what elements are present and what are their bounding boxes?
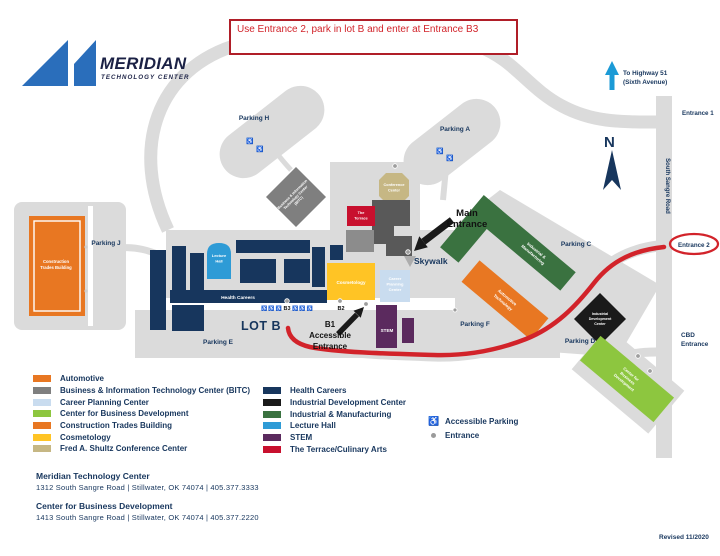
construction-label-2: Trades Building <box>40 265 72 270</box>
legend-swatch <box>33 445 51 452</box>
legend-item: STEM <box>263 432 406 444</box>
idc-label-2: Development <box>589 317 612 321</box>
legend-symbols: ♿ Accessible Parking Entrance <box>428 414 518 443</box>
parking-h-label: Parking H <box>239 115 270 122</box>
legend-swatch <box>263 411 281 418</box>
legend-column-1: Automotive Business & Information Techno… <box>33 373 250 455</box>
idc-label-3: Center <box>594 322 606 326</box>
entrance-1-label: Entrance 1 <box>682 110 714 117</box>
entrance-dot <box>84 289 87 292</box>
legend-label: Automotive <box>60 374 104 383</box>
annotation-box: Use Entrance 2, park in lot B and enter … <box>229 19 518 55</box>
campus-map-page: { "annotation": "Use Entrance 2, park in… <box>0 0 720 556</box>
legend-item: Industrial Development Center <box>263 397 406 409</box>
legend-label: Construction Trades Building <box>60 421 172 430</box>
location-name: Center for Business Development <box>36 501 259 511</box>
legend-label: Entrance <box>445 431 479 440</box>
revised-date: Revised 11/2020 <box>659 534 709 541</box>
building-main-annex <box>346 230 374 252</box>
legend-item: Entrance <box>428 429 518 444</box>
wheelchair-icon: ♿ <box>436 147 444 155</box>
skywalk-label: Skywalk <box>414 256 448 266</box>
legend-label: Business & Information Technology Center… <box>60 386 250 395</box>
parking-c-label: Parking C <box>561 241 592 248</box>
main-entrance-label-1: Main <box>456 208 478 219</box>
legend-item: Fred A. Shultz Conference Center <box>33 443 250 455</box>
entrance-dot-main <box>406 250 411 255</box>
cbd-entrance-label-2: Entrance <box>681 341 709 348</box>
legend-item: Career Planning Center <box>33 396 250 408</box>
entrance-dot-icon <box>428 433 438 438</box>
parking-d-label: Parking D <box>565 338 596 345</box>
legend-swatch <box>263 446 281 453</box>
b3-label: B3 <box>283 306 290 312</box>
conference-label-1: Conference <box>384 183 405 187</box>
location-detail: 1312 South Sangre Road | Stillwater, OK … <box>36 483 259 492</box>
wheelchair-icon: ♿ <box>246 137 254 145</box>
b1-label-2: Accessible <box>309 331 351 340</box>
logo-subtitle: TECHNOLOGY CENTER <box>101 74 190 81</box>
legend-swatch <box>263 399 281 406</box>
legend-item: ♿ Accessible Parking <box>428 414 518 429</box>
building-stem-annex <box>402 318 414 343</box>
legend-label: Career Planning Center <box>60 398 149 407</box>
highway-label-1: To Highway 51 <box>623 70 668 77</box>
entrance-2-label: Entrance 2 <box>678 242 710 249</box>
legend-item: Center for Business Development <box>33 408 250 420</box>
terrace-label-2: Terrace <box>354 217 367 221</box>
entrance-dot <box>84 245 87 248</box>
entrance-dot-b1 <box>364 302 369 307</box>
highway-sign: To Highway 51 (Sixth Avenue) <box>605 61 668 90</box>
entrance-dot-b3 <box>285 299 290 304</box>
meridian-logo: MERIDIAN TECHNOLOGY CENTER <box>20 14 210 90</box>
legend-swatch <box>263 422 281 429</box>
cbd-entrance-label-1: CBD <box>681 332 695 339</box>
parking-j-label: Parking J <box>91 240 121 247</box>
legend-item: The Terrace/Culinary Arts <box>263 443 406 455</box>
legend-swatch <box>33 399 51 406</box>
legend-item: Automotive <box>33 373 250 385</box>
legend-item: Construction Trades Building <box>33 420 250 432</box>
legend-swatch <box>33 434 51 441</box>
logo-peak-left <box>22 40 68 86</box>
parking-h-lot <box>210 76 334 188</box>
parking-e-label: Parking E <box>203 339 234 346</box>
north-compass: N <box>603 134 621 190</box>
legend-swatch <box>33 422 51 429</box>
lecture-hall-label-1: Lecture <box>212 253 227 258</box>
b2-label: B2 <box>337 306 344 312</box>
legend-item: Lecture Hall <box>263 420 406 432</box>
legend-swatch <box>33 410 51 417</box>
location-detail: 1413 South Sangre Road | Stillwater, OK … <box>36 513 259 522</box>
legend-label: Fred A. Shultz Conference Center <box>60 444 187 453</box>
legend-swatch <box>33 375 51 382</box>
meridian-logo-icon <box>20 20 98 90</box>
lecture-hall-label-2: Hall <box>215 259 222 264</box>
b1-label-3: Entrance <box>313 342 348 351</box>
legend-item: Business & Information Technology Center… <box>33 385 250 397</box>
south-sangre-road-label: South Sangre Road <box>664 158 670 214</box>
legend-label: STEM <box>290 433 312 442</box>
legend-label: Health Careers <box>290 386 346 395</box>
logo-title: MERIDIAN <box>100 54 186 74</box>
legend-item: Health Careers <box>263 385 406 397</box>
legend-label: Accessible Parking <box>445 417 518 426</box>
entrance-dot-cbd2 <box>648 369 653 374</box>
legend-item: Industrial & Manufacturing <box>263 408 406 420</box>
main-entrance-label-2: Entrance <box>447 219 488 230</box>
wheelchair-icon-row: ♿♿♿ <box>261 305 283 312</box>
legend-label: The Terrace/Culinary Arts <box>290 445 387 454</box>
cosmetology-label: Cosmetology <box>336 280 366 285</box>
idc-label-1: Industrial <box>592 312 608 316</box>
building-stem <box>376 305 397 348</box>
stem-label: STEM <box>381 328 394 333</box>
terrace-label-1: The <box>358 211 365 215</box>
legend-label: Cosmetology <box>60 433 111 442</box>
legend-item: Cosmetology <box>33 431 250 443</box>
footer-addresses: Meridian Technology Center 1312 South Sa… <box>36 471 259 531</box>
wheelchair-icon: ♿ <box>428 416 438 427</box>
career-label-2: Planning <box>387 282 404 287</box>
legend-label: Industrial Development Center <box>290 398 406 407</box>
entrance-dot-b2 <box>338 299 343 304</box>
b1-label-1: B1 <box>325 320 336 329</box>
highway-label-2: (Sixth Avenue) <box>623 79 667 86</box>
legend-column-2: Health Careers Industrial Development Ce… <box>263 385 406 455</box>
parking-f-label: Parking F <box>460 321 490 328</box>
wheelchair-icon: ♿ <box>446 154 454 162</box>
logo-peak-right <box>74 40 96 86</box>
career-label-1: Career <box>389 276 402 281</box>
career-label-3: Center <box>389 287 402 292</box>
health-careers-label: Health Careers <box>221 295 255 301</box>
legend-label: Industrial & Manufacturing <box>290 410 391 419</box>
north-label: N <box>604 134 615 151</box>
parking-a-label: Parking A <box>440 126 470 133</box>
lot-b-label: LOT B <box>241 319 281 333</box>
legend-swatch <box>263 387 281 394</box>
entrance-dot-conference <box>393 164 398 169</box>
legend-swatch <box>33 387 51 394</box>
highway-arrow-icon <box>605 61 619 75</box>
lot-divider <box>88 206 93 326</box>
conference-label-2: Center <box>388 189 401 193</box>
location-name: Meridian Technology Center <box>36 471 259 481</box>
legend-label: Lecture Hall <box>290 421 336 430</box>
construction-label-1: Construction <box>43 259 69 264</box>
wheelchair-icon: ♿ <box>256 145 264 153</box>
entrance-dot-parking-f <box>453 308 457 312</box>
legend-label: Center for Business Development <box>60 409 188 418</box>
annotation-text: Use Entrance 2, park in lot B and enter … <box>237 24 478 35</box>
north-arrow-icon <box>603 150 621 190</box>
legend-swatch <box>263 434 281 441</box>
wheelchair-icon-row: ♿♿♿ <box>292 305 314 312</box>
entrance-dot-cbd1 <box>636 354 641 359</box>
